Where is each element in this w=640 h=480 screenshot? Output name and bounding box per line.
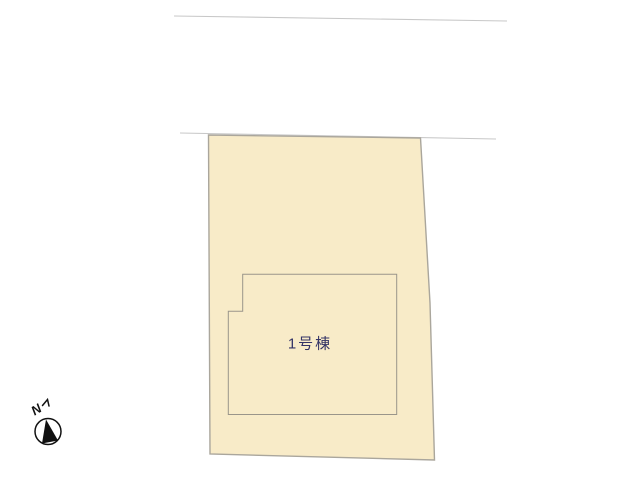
site-plan-canvas: 1号棟 N: [0, 0, 640, 480]
road-edge-line-upper: [174, 16, 507, 21]
compass-north-label: N: [28, 400, 44, 418]
north-compass: N: [28, 400, 61, 445]
compass-needle-icon: [42, 420, 58, 444]
site-plan-drawing: 1号棟 N: [0, 0, 640, 480]
compass-arrowhead-icon: [43, 400, 50, 407]
building-1-label: 1号棟: [288, 336, 332, 353]
